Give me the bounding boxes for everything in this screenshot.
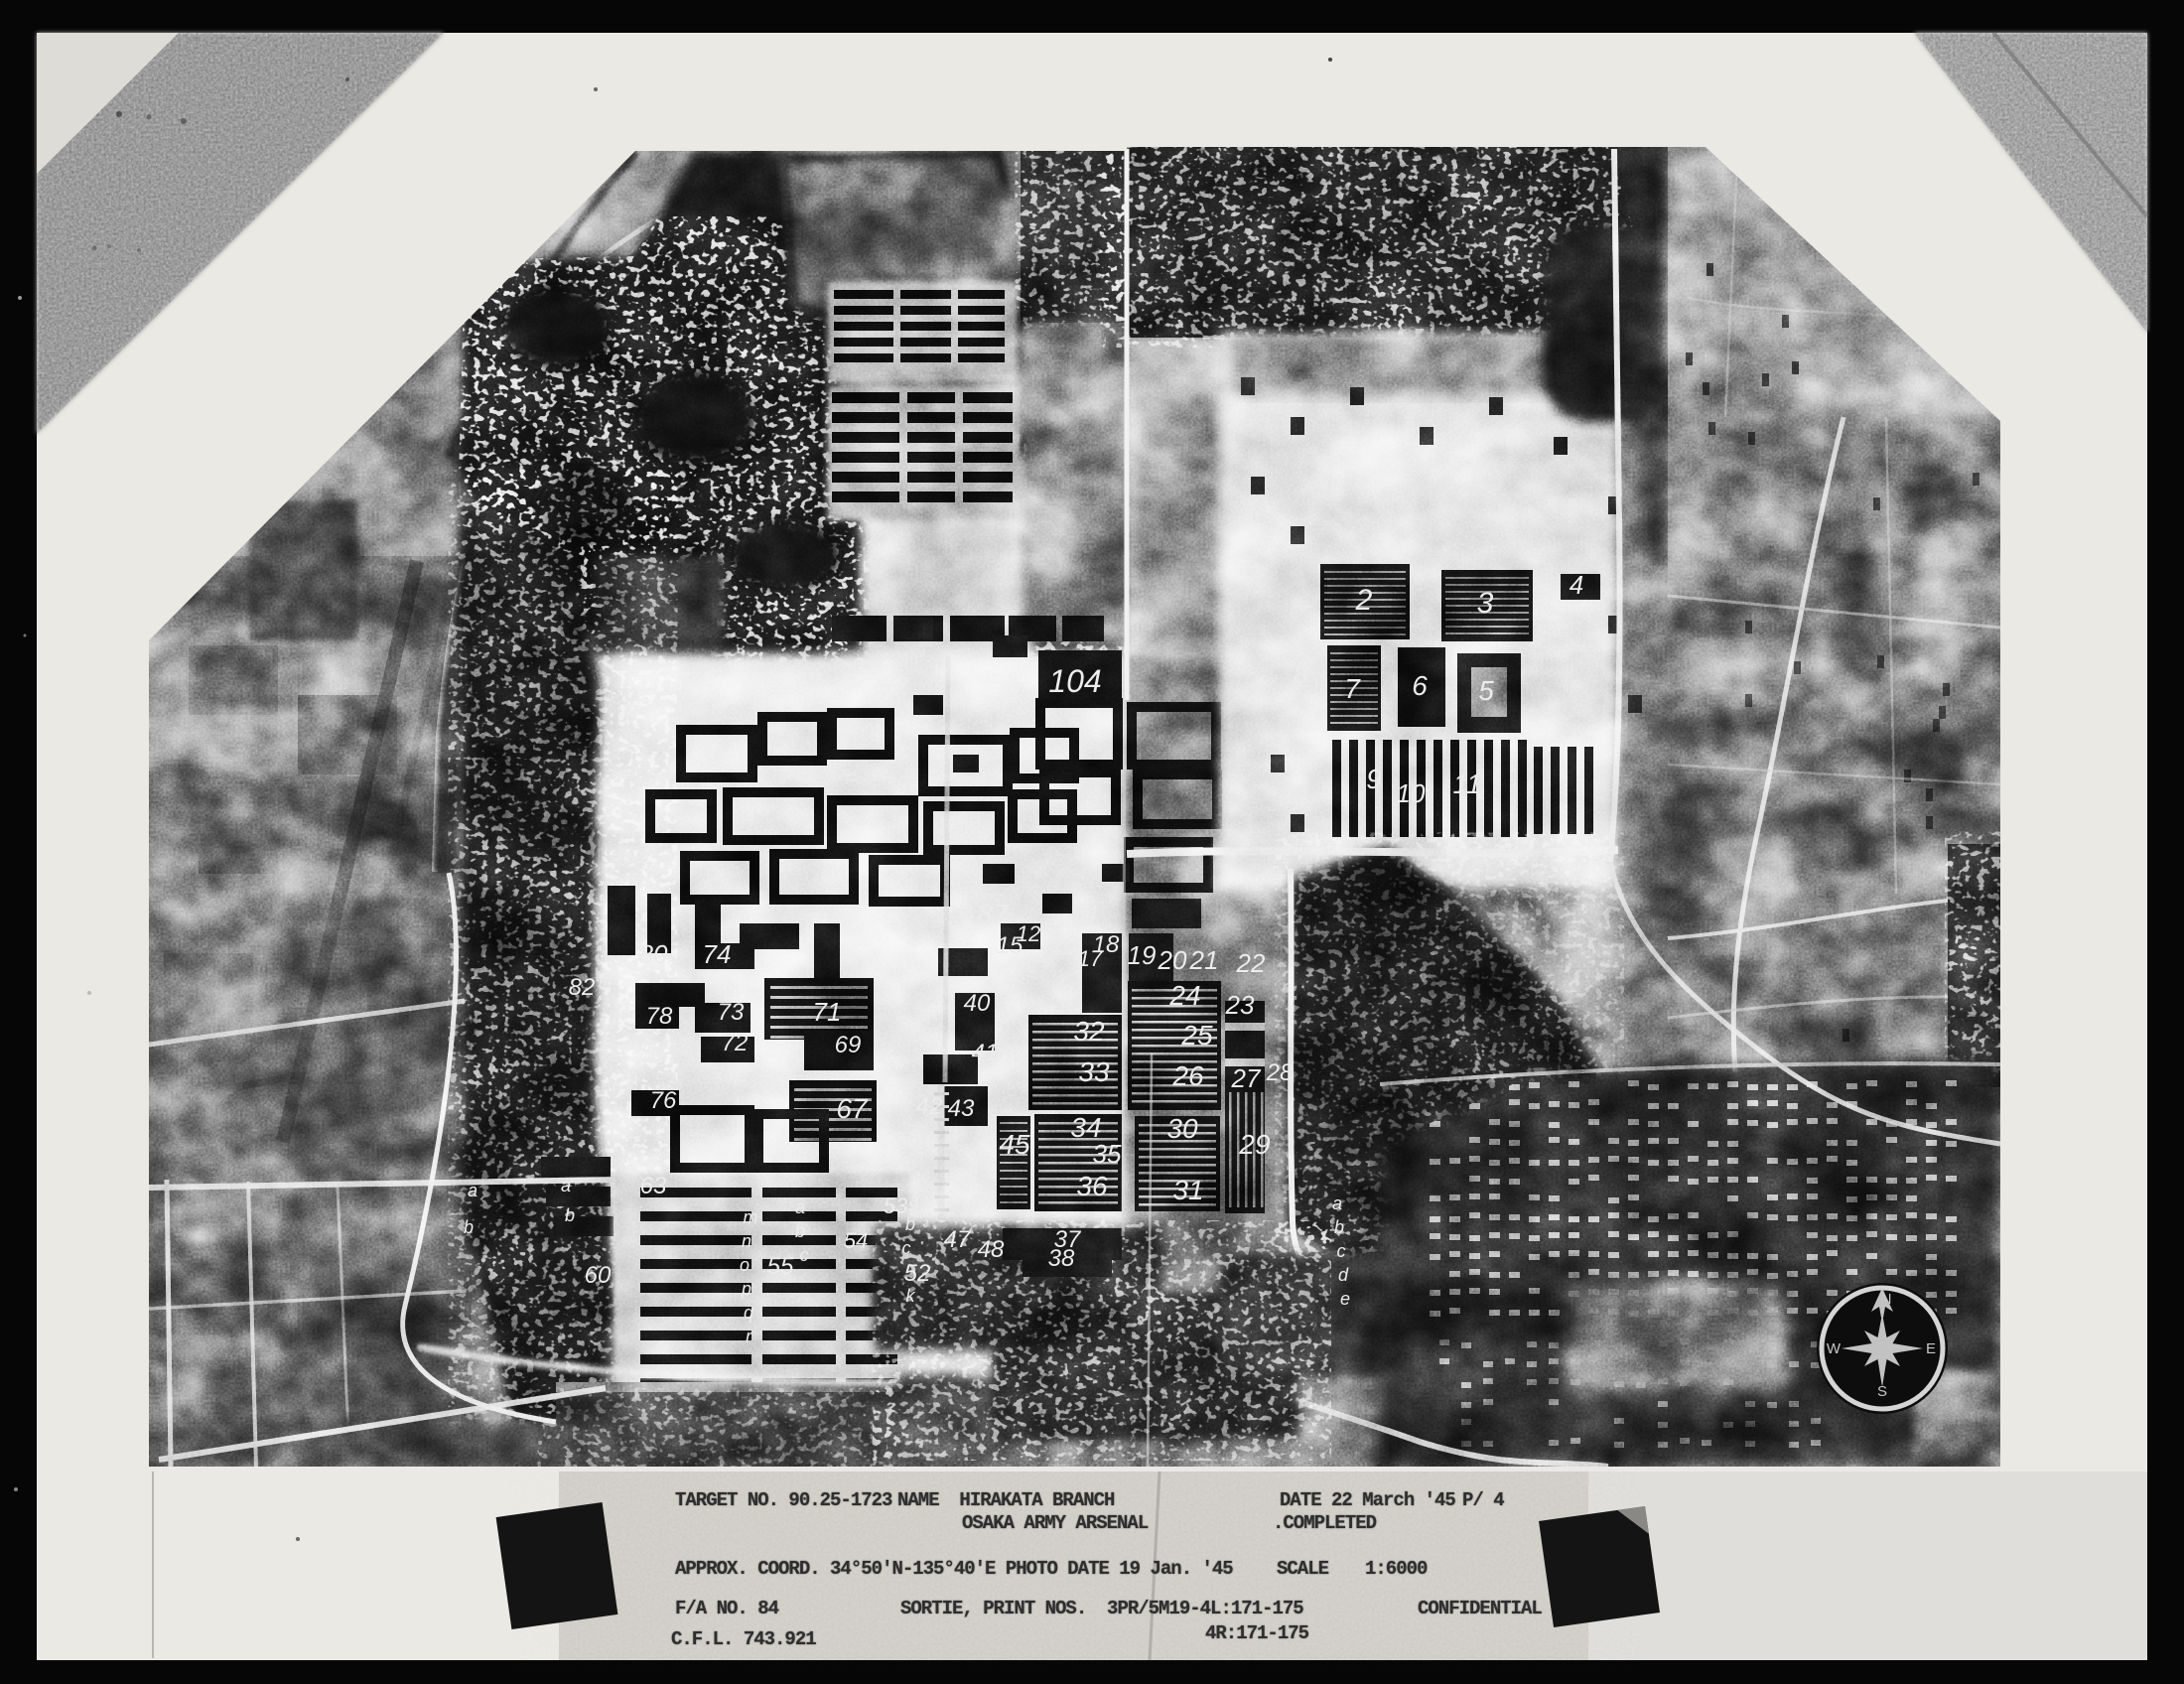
svg-text:14: 14 [1071, 901, 1098, 927]
svg-text:DATE 22 March '45: DATE 22 March '45 [1280, 1489, 1455, 1511]
svg-text:a: a [1332, 1193, 1342, 1213]
svg-text:P/ 4: P/ 4 [1462, 1489, 1504, 1511]
svg-text:11: 11 [1452, 769, 1481, 799]
svg-text:19: 19 [1128, 940, 1157, 970]
svg-text:n: n [742, 1231, 751, 1251]
svg-text:c: c [902, 1238, 911, 1258]
svg-text:30: 30 [1166, 1113, 1198, 1144]
svg-text:a: a [795, 1197, 805, 1217]
svg-text:54: 54 [844, 1228, 868, 1253]
svg-text:20: 20 [1158, 945, 1187, 975]
svg-text:6: 6 [1412, 670, 1428, 701]
svg-text:b: b [905, 1214, 915, 1234]
svg-text:9: 9 [1366, 764, 1382, 794]
svg-text:e: e [1340, 1289, 1350, 1309]
svg-text:42: 42 [916, 1093, 943, 1120]
svg-text:78: 78 [646, 1003, 673, 1030]
svg-text:p: p [741, 1279, 751, 1299]
svg-text:TARGET NO. 90.25-1723: TARGET NO. 90.25-1723 [675, 1489, 892, 1511]
svg-text:CONFIDENTIAL: CONFIDENTIAL [1418, 1598, 1542, 1619]
svg-text:o: o [740, 1255, 750, 1275]
svg-text:74: 74 [703, 939, 732, 969]
svg-text:q: q [744, 1303, 753, 1323]
svg-text:SORTIE, PRINT NOS. 3PR/5M19-4: SORTIE, PRINT NOS. 3PR/5M19-4L:171-175 [900, 1598, 1303, 1619]
svg-text:NAME HIRAKATA BRANCH: NAME HIRAKATA BRANCH [897, 1489, 1115, 1511]
svg-text:3: 3 [1477, 587, 1494, 620]
svg-text:E: E [1926, 1340, 1936, 1357]
svg-text:76: 76 [650, 1087, 677, 1114]
svg-text:m: m [744, 1207, 758, 1227]
svg-text:1:6000: 1:6000 [1365, 1558, 1428, 1580]
svg-text:4R:171-175: 4R:171-175 [1205, 1622, 1309, 1644]
svg-text:SCALE: SCALE [1277, 1558, 1329, 1580]
svg-text:80: 80 [639, 939, 668, 969]
svg-text:35: 35 [1093, 1139, 1122, 1169]
svg-text:104: 104 [1048, 663, 1101, 699]
svg-text:41: 41 [972, 1040, 999, 1066]
svg-text:OSAKA ARMY ARSENAL: OSAKA ARMY ARSENAL [962, 1512, 1149, 1534]
svg-text:8: 8 [1294, 659, 1308, 689]
svg-text:82: 82 [569, 974, 596, 1001]
svg-text:24: 24 [1168, 980, 1200, 1011]
svg-text:18: 18 [1093, 931, 1120, 958]
svg-text:63: 63 [640, 1173, 667, 1199]
svg-text:55: 55 [767, 1253, 794, 1280]
svg-text:16: 16 [1051, 931, 1078, 958]
svg-text:b: b [565, 1205, 575, 1225]
svg-text:F/A NO. 84: F/A NO. 84 [675, 1598, 779, 1619]
svg-text:10: 10 [1397, 778, 1426, 808]
svg-text:S: S [1877, 1383, 1887, 1400]
svg-text:c: c [1337, 1241, 1346, 1261]
svg-text:48: 48 [978, 1236, 1005, 1263]
svg-text:C.F.L. 743.921: C.F.L. 743.921 [671, 1628, 816, 1650]
svg-text:46: 46 [968, 1189, 995, 1215]
svg-text:73: 73 [718, 999, 745, 1026]
svg-text:31: 31 [1172, 1175, 1203, 1205]
svg-text:23: 23 [1225, 990, 1255, 1020]
svg-text:4: 4 [1570, 570, 1583, 600]
svg-text:a: a [468, 1181, 478, 1200]
svg-text:69: 69 [835, 1032, 862, 1058]
svg-text:2: 2 [1355, 584, 1373, 617]
svg-text:38: 38 [1048, 1245, 1075, 1272]
svg-text:77: 77 [628, 1030, 653, 1054]
svg-text:71: 71 [813, 997, 842, 1027]
svg-text:26: 26 [1171, 1060, 1204, 1091]
svg-text:.COMPLETED: .COMPLETED [1273, 1512, 1377, 1534]
svg-text:c: c [800, 1245, 809, 1265]
svg-text:52: 52 [904, 1260, 931, 1287]
svg-text:87: 87 [977, 899, 1010, 929]
svg-text:7: 7 [1344, 673, 1361, 704]
svg-text:43: 43 [948, 1095, 975, 1122]
svg-text:27: 27 [1231, 1063, 1262, 1093]
svg-text:b: b [795, 1221, 805, 1241]
svg-text:36: 36 [1076, 1171, 1108, 1201]
svg-text:15: 15 [997, 932, 1024, 959]
svg-text:k: k [906, 1286, 916, 1306]
svg-text:45: 45 [999, 1129, 1030, 1160]
svg-text:a: a [909, 1191, 919, 1210]
svg-text:r: r [746, 1327, 752, 1346]
svg-text:72: 72 [722, 1030, 749, 1056]
svg-text:21: 21 [1189, 945, 1219, 975]
svg-text:32: 32 [1073, 1016, 1105, 1047]
svg-text:60: 60 [585, 1262, 612, 1289]
svg-text:33: 33 [1078, 1056, 1110, 1087]
svg-text:40: 40 [964, 990, 991, 1017]
svg-text:29: 29 [1238, 1129, 1270, 1160]
svg-text:d: d [1338, 1265, 1349, 1285]
svg-text:b: b [1334, 1217, 1344, 1237]
svg-text:47: 47 [944, 1226, 972, 1253]
svg-text:22: 22 [1236, 948, 1266, 978]
svg-text:b: b [464, 1217, 474, 1237]
svg-text:APPROX. COORD. 34°50'N-135°40': APPROX. COORD. 34°50'N-135°40'E PHOTO DA… [675, 1558, 1233, 1580]
svg-text:5: 5 [1478, 675, 1494, 706]
svg-text:28: 28 [1266, 1059, 1294, 1086]
svg-text:a: a [561, 1176, 571, 1195]
svg-text:25: 25 [1180, 1020, 1213, 1051]
svg-text:W: W [1827, 1340, 1842, 1357]
svg-text:N: N [1881, 1291, 1892, 1308]
svg-text:67: 67 [836, 1093, 869, 1124]
